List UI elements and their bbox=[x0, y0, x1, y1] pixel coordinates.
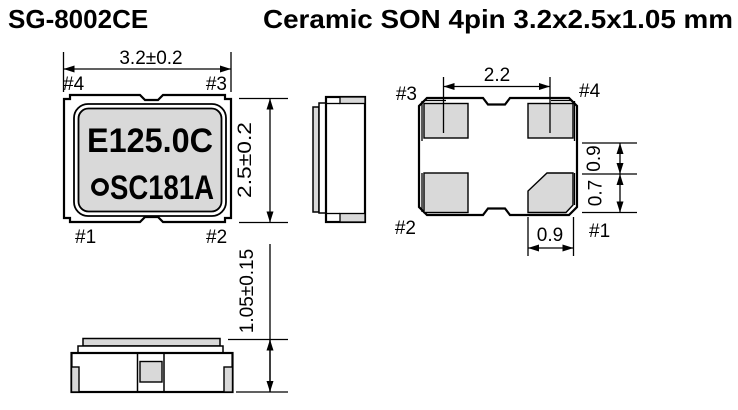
bottom-view: #3 #4 #2 #1 2.2 0.9 0.7 0.9 bbox=[395, 65, 637, 256]
side-view-bottom-pad bbox=[340, 214, 365, 223]
marking-text-line1: E125.0C bbox=[87, 122, 213, 160]
dim-label-front-height: 1.05±0.15 bbox=[237, 249, 258, 333]
front-view-lid bbox=[83, 339, 220, 347]
dim-front-height: 1.05±0.15 bbox=[228, 244, 288, 392]
dim-label-height: 2.5±0.2 bbox=[235, 122, 256, 198]
page-title-package: Ceramic SON 4pin 3.2x2.5x1.05 mm bbox=[263, 4, 733, 34]
top-view-pin-label-3: #3 bbox=[206, 74, 227, 95]
front-view-left-castellation bbox=[72, 367, 80, 392]
package-drawing-svg: SG-8002CE Ceramic SON 4pin 3.2x2.5x1.05 … bbox=[0, 0, 738, 410]
bottom-view-pin-label-4: #4 bbox=[579, 81, 601, 102]
dim-label-pad-pitch: 2.2 bbox=[484, 65, 510, 86]
bottom-view-pin-label-3: #3 bbox=[396, 84, 417, 105]
side-view bbox=[313, 97, 365, 222]
dim-pad-width: 0.9 bbox=[528, 217, 574, 256]
top-view-pin-label-1: #1 bbox=[75, 227, 96, 248]
bottom-view-pin-label-2: #2 bbox=[395, 218, 416, 239]
datasheet-drawing: SG-8002CE Ceramic SON 4pin 3.2x2.5x1.05 … bbox=[0, 0, 738, 410]
top-view: E125.0C SC181A #4 #3 #1 #2 3.2±0.2 2.5±0… bbox=[63, 48, 288, 248]
top-view-pin-label-2: #2 bbox=[206, 227, 227, 248]
dim-label-width: 3.2±0.2 bbox=[119, 48, 182, 69]
side-view-top-pad bbox=[340, 97, 365, 104]
dim-label-pad-width: 0.9 bbox=[537, 225, 563, 246]
header: SG-8002CE Ceramic SON 4pin 3.2x2.5x1.05 … bbox=[8, 4, 733, 34]
dim-right-stack: 0.9 0.7 bbox=[582, 143, 637, 213]
side-view-lid-edge bbox=[313, 107, 319, 212]
dim-top-height: 2.5±0.2 bbox=[235, 99, 288, 223]
pad-2 bbox=[424, 173, 468, 213]
bottom-view-pin-label-1: #1 bbox=[589, 221, 610, 242]
side-view-body bbox=[326, 97, 365, 222]
page-title-part-number: SG-8002CE bbox=[8, 4, 148, 34]
marking-text-line2: SC181A bbox=[110, 169, 214, 207]
front-view-right-castellation bbox=[224, 367, 233, 392]
dim-label-edge-lower: 0.7 bbox=[586, 180, 607, 206]
top-view-pin-label-4: #4 bbox=[63, 74, 85, 95]
front-view-center-pad bbox=[140, 362, 162, 383]
front-view: 1.05±0.15 bbox=[72, 244, 289, 392]
pad-3 bbox=[424, 104, 468, 139]
dim-label-edge-upper: 0.9 bbox=[584, 145, 605, 171]
